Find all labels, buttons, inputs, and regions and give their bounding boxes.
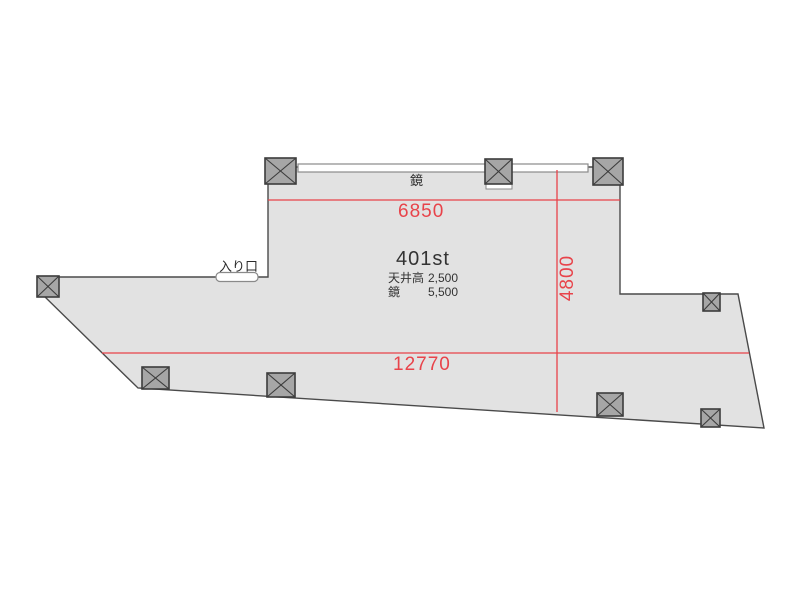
column-marker xyxy=(485,159,512,184)
dimension-top-width: 6850 xyxy=(398,201,444,223)
floor-plan-page: 鏡 入り口 401st 天井高 2,500 鏡 5,500 6850 12770… xyxy=(0,0,800,600)
column-marker xyxy=(701,409,720,427)
dimension-height: 4800 xyxy=(557,255,579,301)
column-marker xyxy=(597,393,623,416)
spec-ceiling-height: 天井高 2,500 xyxy=(388,271,458,285)
dimension-bottom-width: 12770 xyxy=(393,354,451,376)
room-specs: 天井高 2,500 鏡 5,500 xyxy=(388,271,458,299)
spec-mirror-value: 5,500 xyxy=(428,285,458,299)
mirror-label: 鏡 xyxy=(410,170,423,189)
column-marker xyxy=(593,158,623,185)
room-title: 401st xyxy=(396,248,450,271)
floor-plan-svg xyxy=(0,0,800,600)
spec-ceiling-label: 天井高 xyxy=(388,271,428,285)
column-marker xyxy=(267,373,295,397)
spec-mirror-width: 鏡 5,500 xyxy=(388,285,458,299)
spec-ceiling-value: 2,500 xyxy=(428,271,458,285)
column-marker xyxy=(37,276,59,297)
column-marker xyxy=(703,293,720,311)
column-marker xyxy=(142,367,169,389)
entrance-label: 入り口 xyxy=(219,256,258,275)
column-marker xyxy=(265,158,296,184)
mirror-strip xyxy=(298,164,588,172)
spec-mirror-label: 鏡 xyxy=(388,285,428,299)
